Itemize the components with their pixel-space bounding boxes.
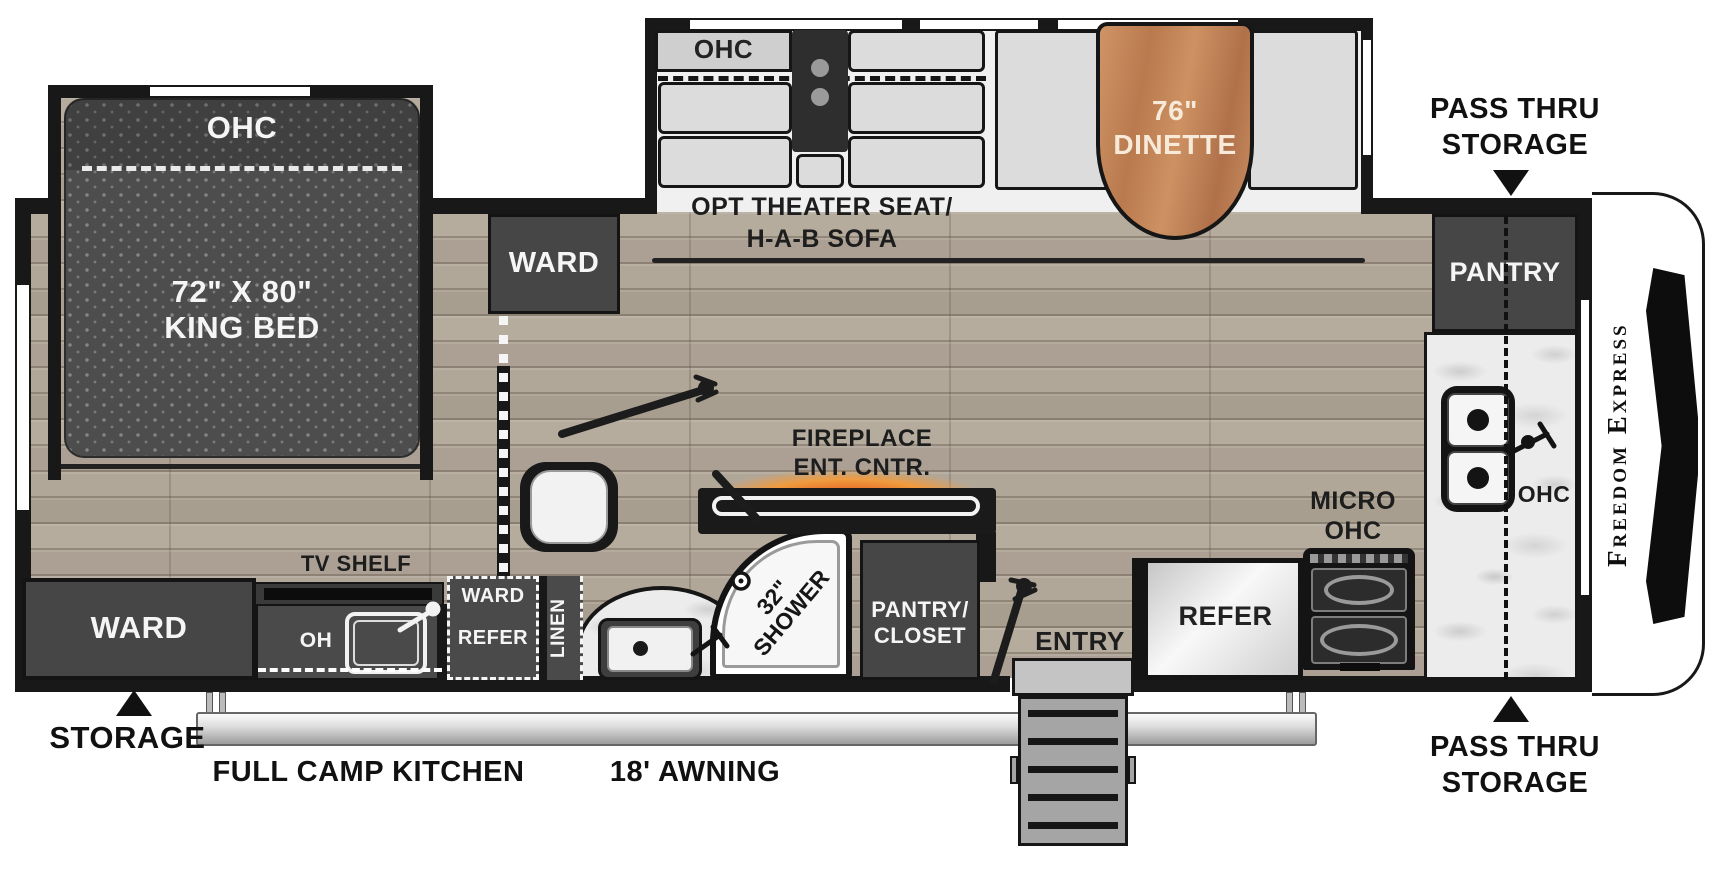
sofa-cushion <box>658 82 792 134</box>
bed-slide-wall-right <box>420 85 433 480</box>
linen-divider <box>539 576 547 680</box>
ward-refer-label-2: REFER <box>447 628 539 649</box>
awning-label: 18' AWNING <box>565 757 825 787</box>
sofa-ohc-label: OHC <box>655 36 792 63</box>
sofa-cushion <box>658 136 792 188</box>
step-tread <box>1028 794 1118 801</box>
sink-drain <box>1467 409 1489 431</box>
bed-slide-wall-left <box>48 85 61 480</box>
bed-ohc-label: OHC <box>64 112 420 145</box>
awning-post <box>1299 692 1306 714</box>
step-tread <box>1028 766 1118 773</box>
pantry-closet-label-1: PANTRY/ <box>860 598 980 621</box>
cup-holder <box>811 59 829 77</box>
rv-floorplan: Freedom Express OHC 72" X 80" KING BED O… <box>0 0 1720 875</box>
bed-ohc-divider <box>82 166 402 171</box>
sofa-slide-floor-outline <box>652 258 1365 263</box>
camp-sink-basin <box>353 620 419 666</box>
sofa-cushion <box>848 136 985 188</box>
entry-step-landing <box>1012 658 1134 696</box>
micro-ohc-label-2: OHC <box>1288 518 1418 544</box>
pass-thru-top-label-2: STORAGE <box>1410 130 1620 160</box>
step-tread <box>1028 710 1118 717</box>
bath-sink-drain <box>633 641 648 656</box>
privacy-curtain <box>499 316 508 588</box>
bed-slide-window <box>150 87 310 96</box>
bed-slide-floor-outline <box>56 464 424 469</box>
stove-burner <box>1324 575 1394 605</box>
tv-on-shelf <box>264 588 432 600</box>
pass-thru-top-label-1: PASS THRU <box>1410 94 1620 124</box>
bath-sink-basin <box>607 626 693 672</box>
fireplace-label-1: FIREPLACE <box>732 426 992 451</box>
camp-kitchen-label: FULL CAMP KITCHEN <box>196 757 541 787</box>
sofa-slide-window-2 <box>920 20 1038 29</box>
dinette-size-label: 76" <box>1096 96 1254 125</box>
step-tread <box>1028 738 1118 745</box>
micro-ohc-label-1: MICRO <box>1288 488 1418 514</box>
entry-label: ENTRY <box>1015 628 1145 655</box>
storage-label: STORAGE <box>10 722 245 755</box>
cup-holder <box>811 88 829 106</box>
awning-post <box>1286 692 1293 714</box>
tv-shelf-label: TV SHELF <box>276 552 436 575</box>
refer-label: REFER <box>1148 602 1303 630</box>
storage-arrow <box>116 690 152 716</box>
top-wall-mid <box>421 198 657 214</box>
sofa-slide-window-right <box>1363 40 1371 155</box>
ward-upper-label: WARD <box>488 248 620 278</box>
awning-post <box>219 692 226 714</box>
linen-label: LINEN <box>549 582 579 674</box>
bed-size-label: 72" X 80" <box>64 276 420 309</box>
sofa-opt-label-2: H-A-B SOFA <box>652 226 992 252</box>
fireplace-label-2: ENT. CNTR. <box>732 455 992 480</box>
rear-wall-window <box>17 285 29 510</box>
pass-thru-bottom-label-2: STORAGE <box>1410 768 1620 798</box>
awning-post <box>206 692 213 714</box>
step-tread <box>1028 822 1118 829</box>
stove-burner <box>1320 624 1398 656</box>
sofa-cushion <box>848 82 985 134</box>
bed-type-label: KING BED <box>64 312 420 345</box>
step-rail <box>1128 756 1136 784</box>
sofa-slide-window-1 <box>690 20 902 29</box>
sofa-cushion <box>848 30 985 72</box>
sink-drain <box>1467 467 1489 489</box>
ward-rear-label: WARD <box>22 612 256 645</box>
ward-refer-label-1: WARD <box>447 586 539 607</box>
sofa-console-cushion <box>796 154 844 188</box>
sofa-opt-label-1: OPT THEATER SEAT/ <box>652 194 992 220</box>
brand-logo: Freedom Express <box>1602 235 1642 655</box>
oh-label: OH <box>294 630 338 652</box>
pantry-closet-label-2: CLOSET <box>860 624 980 647</box>
dinette-bench <box>995 30 1111 190</box>
pass-thru-bottom-label-1: PASS THRU <box>1410 732 1620 762</box>
stove-handle <box>1340 663 1380 671</box>
toilet-bowl <box>530 470 608 544</box>
dinette-name-label: DINETTE <box>1096 130 1254 159</box>
tv-outline <box>712 496 980 516</box>
awning-bar <box>196 712 1317 746</box>
front-wall-window <box>1581 300 1589 595</box>
counter-ohc-label: OHC <box>1512 482 1576 506</box>
step-rail <box>1010 756 1018 784</box>
pass-thru-bottom-arrow <box>1493 696 1529 722</box>
pass-thru-top-arrow <box>1493 170 1529 196</box>
dinette-bench <box>1248 30 1358 190</box>
top-wall-right <box>1361 198 1592 214</box>
pass-thru-divider-line <box>1504 216 1508 680</box>
stove-vent <box>1310 554 1408 563</box>
camp-kitchen-dashed-edge <box>258 668 442 672</box>
